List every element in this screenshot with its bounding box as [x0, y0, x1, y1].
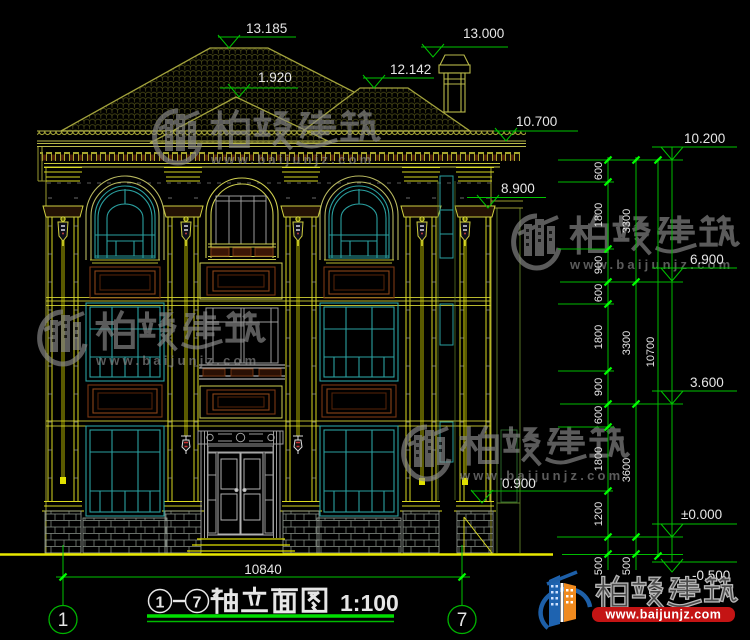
- svg-text:1800: 1800: [593, 203, 605, 227]
- svg-text:600: 600: [593, 284, 605, 302]
- svg-text:3600: 3600: [621, 458, 633, 482]
- svg-text:0.900: 0.900: [502, 476, 536, 491]
- svg-text:1.920: 1.920: [258, 70, 292, 85]
- svg-text:8.900: 8.900: [501, 181, 535, 196]
- svg-text:600: 600: [593, 406, 605, 424]
- svg-text:10.700: 10.700: [516, 114, 557, 129]
- svg-text:3300: 3300: [621, 209, 633, 233]
- svg-text:13.185: 13.185: [246, 21, 287, 36]
- svg-text:1800: 1800: [593, 447, 605, 471]
- svg-text:500: 500: [593, 557, 605, 575]
- svg-text:12.142: 12.142: [390, 62, 431, 77]
- svg-text:10840: 10840: [244, 562, 282, 577]
- svg-text:500: 500: [621, 557, 633, 575]
- svg-text:600: 600: [593, 162, 605, 180]
- svg-text:6.900: 6.900: [690, 252, 724, 267]
- svg-text:1: 1: [156, 595, 165, 612]
- svg-text:10.200: 10.200: [684, 131, 725, 146]
- svg-text:3300: 3300: [621, 331, 633, 355]
- svg-text:1200: 1200: [593, 502, 605, 526]
- svg-text:900: 900: [593, 256, 605, 274]
- svg-text:±0.000: ±0.000: [681, 507, 722, 522]
- svg-text:1: 1: [58, 610, 69, 631]
- svg-text:900: 900: [593, 378, 605, 396]
- svg-text:13.000: 13.000: [463, 26, 504, 41]
- svg-text:www.baijunjz.com: www.baijunjz.com: [605, 608, 722, 622]
- svg-text:7: 7: [193, 595, 202, 612]
- svg-text:3.600: 3.600: [690, 375, 724, 390]
- svg-text:7: 7: [457, 610, 468, 631]
- svg-text:10700: 10700: [645, 337, 657, 368]
- svg-text:1:100: 1:100: [340, 590, 399, 616]
- svg-text:1800: 1800: [593, 325, 605, 349]
